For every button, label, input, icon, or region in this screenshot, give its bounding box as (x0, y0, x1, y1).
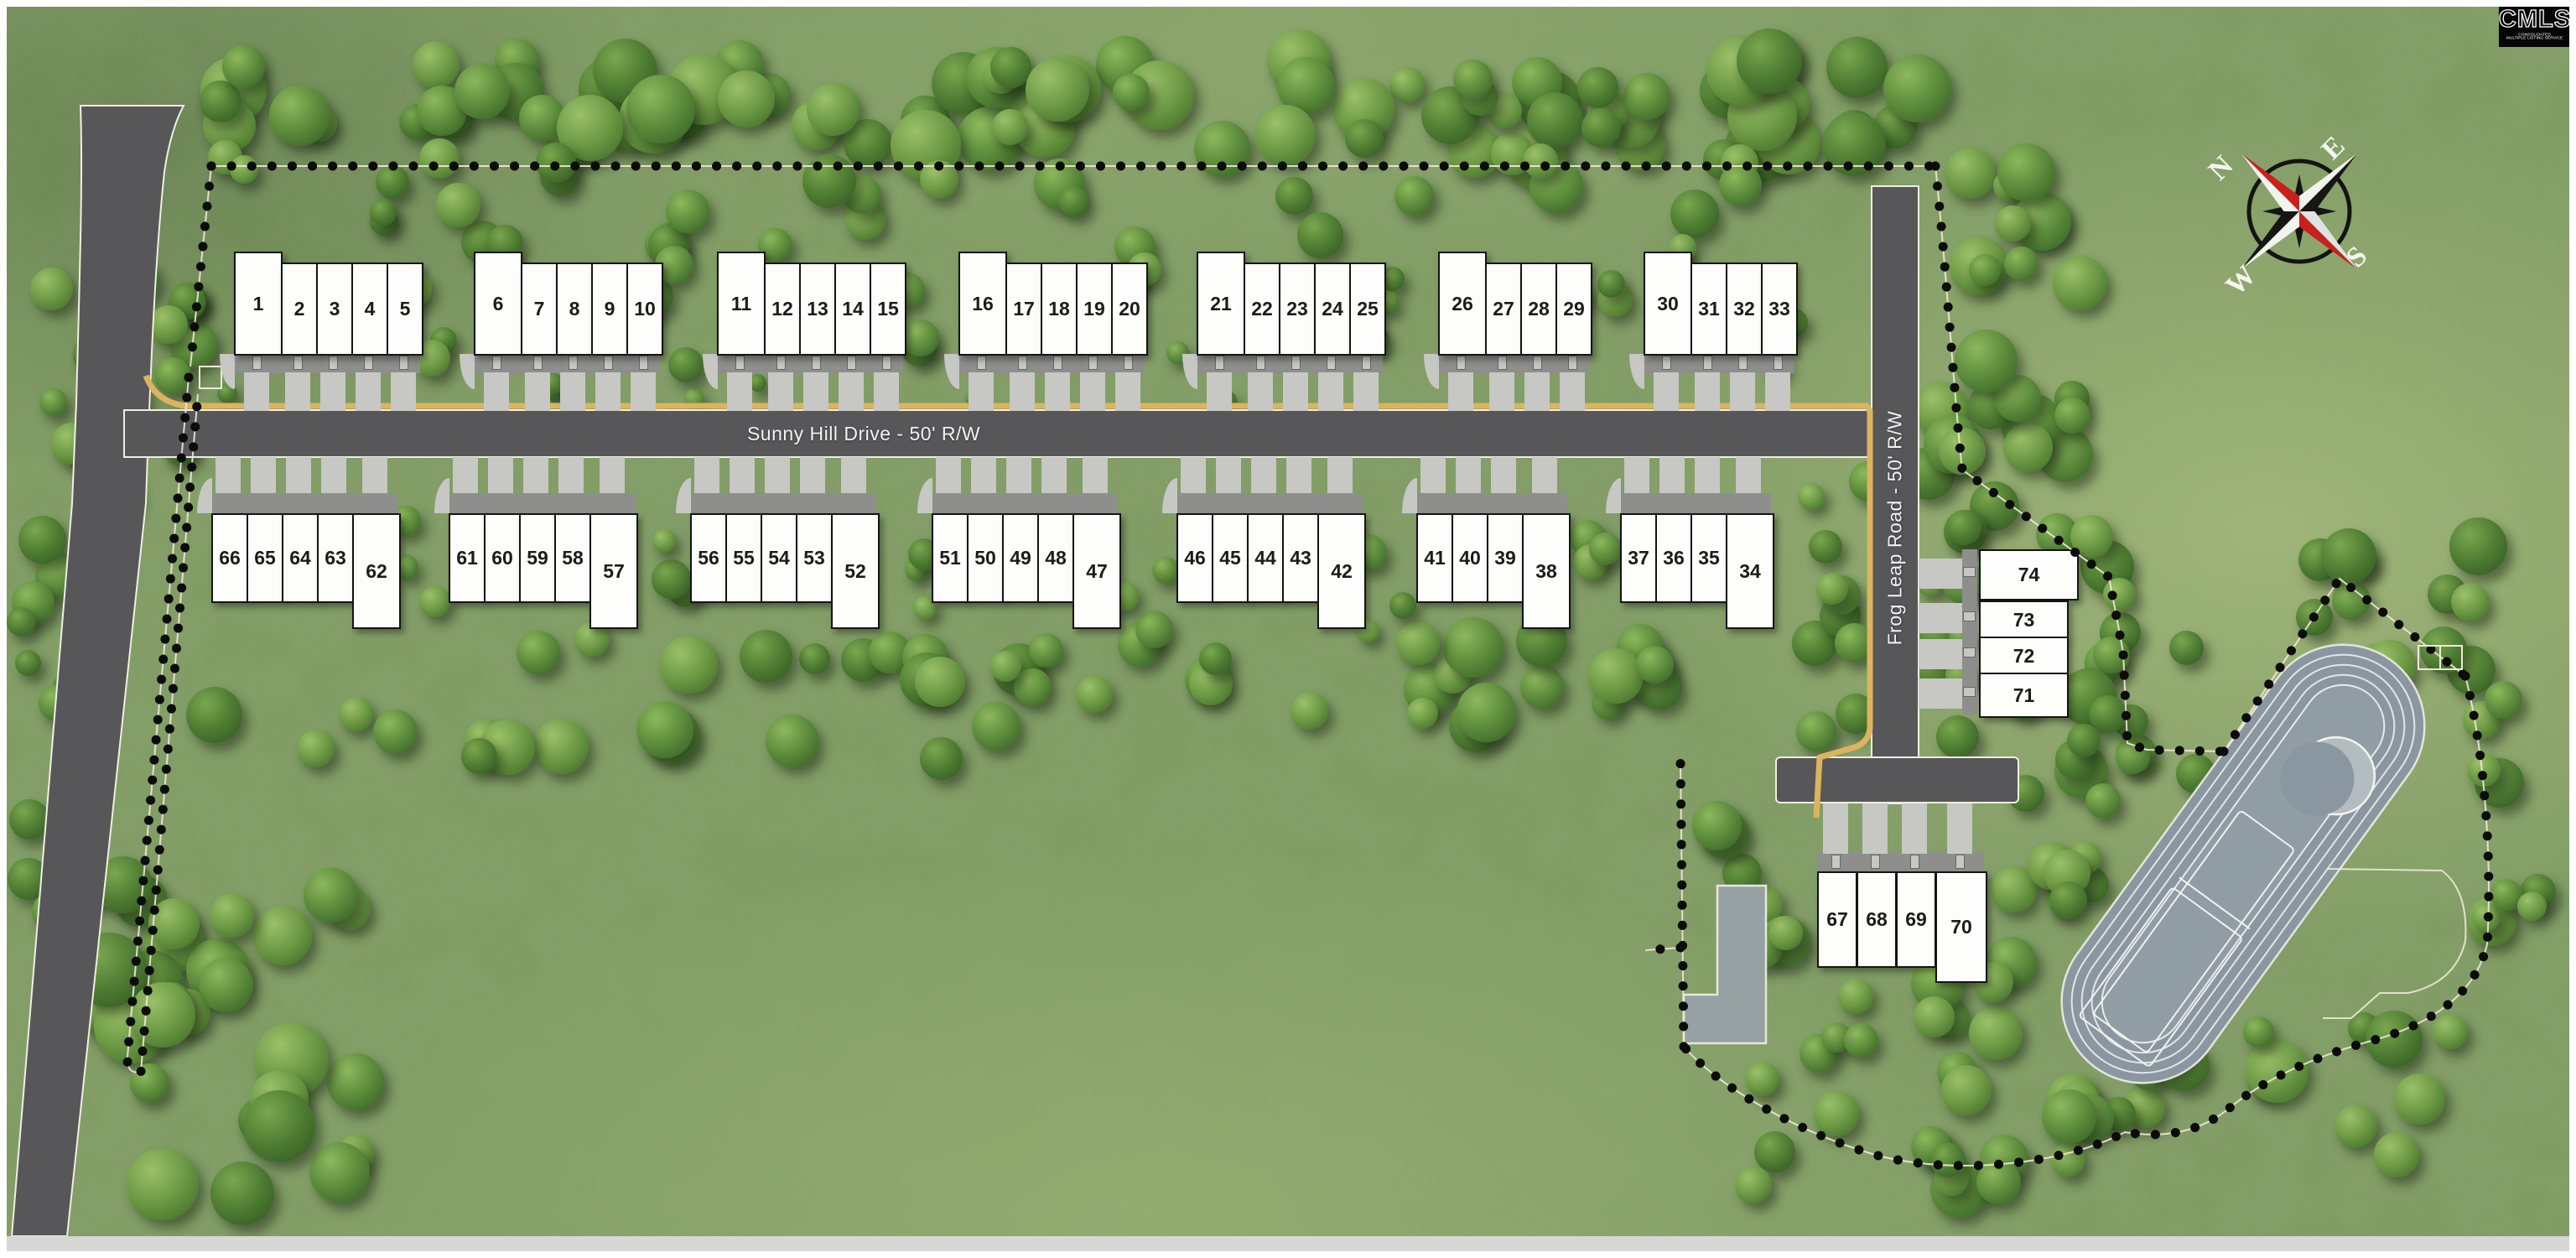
tree (990, 651, 1021, 682)
garage-notch (1964, 568, 1975, 576)
tree (436, 183, 480, 227)
tree (660, 636, 718, 694)
tree (80, 418, 115, 453)
lot-72: 72 (1979, 637, 2069, 675)
tree (1457, 683, 1516, 742)
lot-69: 69 (1896, 871, 1936, 968)
lot-5: 5 (387, 263, 423, 356)
tree (114, 379, 149, 414)
garage-notch (1089, 356, 1097, 369)
garage-notch (978, 356, 985, 369)
driveway-hook (676, 478, 691, 513)
driveway (1659, 457, 1685, 495)
tree (353, 409, 371, 428)
tree (1844, 1023, 1878, 1058)
garage-notch (1911, 855, 1919, 868)
tree (666, 190, 709, 233)
tree (1194, 121, 1250, 177)
tree (1396, 621, 1440, 665)
tree (1822, 112, 1886, 176)
tree (373, 710, 418, 754)
tree (1939, 428, 1986, 475)
driveway (694, 457, 719, 495)
lot-10: 10 (626, 263, 663, 356)
lot-3: 3 (316, 263, 353, 356)
driveway (1654, 372, 1679, 411)
lot-35: 35 (1690, 513, 1727, 603)
garage-notch (1739, 356, 1747, 369)
tree (2467, 753, 2501, 787)
driveway (1491, 457, 1516, 495)
lot-51: 51 (932, 513, 969, 603)
junction-patch (126, 412, 156, 455)
driveway (558, 457, 584, 495)
driveway-hook (944, 354, 959, 389)
driveway (1115, 372, 1140, 411)
garage-notch (1704, 356, 1711, 369)
tree (1014, 668, 1052, 706)
tree (1836, 694, 1876, 734)
tree (1914, 996, 1955, 1037)
lot-26: 26 (1438, 252, 1487, 356)
lot-59: 59 (519, 513, 556, 603)
garage-notch (1956, 855, 1964, 868)
garage-notch (1019, 356, 1026, 369)
garage-notch (777, 356, 785, 369)
tree (2054, 398, 2090, 434)
lot-16: 16 (958, 252, 1007, 356)
lot-13: 13 (799, 263, 836, 356)
tree (1969, 1006, 2023, 1060)
lot-70: 70 (1935, 871, 1987, 983)
driveway (1947, 803, 1972, 854)
driveway (595, 372, 621, 411)
driveway (1045, 372, 1070, 411)
sunny-hill-drive-label: Sunny Hill Drive - 50' R/W (696, 423, 1031, 445)
lot-46: 46 (1176, 513, 1213, 603)
lot-45: 45 (1212, 513, 1249, 603)
driveway (874, 372, 899, 411)
tree (148, 898, 200, 949)
tree (533, 719, 589, 774)
tree (2485, 681, 2522, 719)
lot-20: 20 (1111, 263, 1148, 356)
tree (419, 138, 460, 179)
tree (339, 697, 373, 731)
garage-notch (1054, 356, 1062, 369)
tree (1941, 1065, 1992, 1115)
compass-s-label: S (2340, 241, 2374, 274)
tree (2296, 599, 2333, 636)
driveway (1420, 457, 1446, 495)
lot-19: 19 (1076, 263, 1113, 356)
cmls-logo: CMLS CONSOLIDATED MULTIPLE LISTING SERVI… (2499, 3, 2571, 47)
driveway (631, 372, 656, 411)
lot-58: 58 (554, 513, 591, 603)
driveway-hook (917, 478, 932, 513)
tree (2394, 1073, 2445, 1125)
driveway (765, 457, 790, 495)
tree (1152, 557, 1179, 584)
lot-48: 48 (1037, 513, 1074, 603)
tree (1453, 60, 1493, 99)
driveway (1083, 457, 1108, 495)
garage-notch (253, 356, 261, 369)
tree (1029, 633, 1063, 668)
tree (1754, 1131, 1795, 1172)
driveway-hook (703, 354, 718, 389)
tree (2243, 1016, 2274, 1047)
tree (1623, 73, 1670, 120)
lot-36: 36 (1655, 513, 1692, 603)
tree (1826, 37, 1888, 98)
lot-53: 53 (796, 513, 833, 603)
tree (130, 1063, 169, 1103)
lot-37: 37 (1620, 513, 1657, 603)
driveway (1532, 457, 1557, 495)
tree (1443, 617, 1504, 678)
driveway (286, 457, 311, 495)
garage-apron (449, 493, 635, 513)
tree (1520, 665, 1564, 709)
tree (164, 430, 193, 459)
tree (1955, 330, 2018, 392)
garage-notch (294, 356, 302, 369)
tree (1577, 67, 1618, 108)
garage-notch (1363, 356, 1370, 369)
driveway (1207, 372, 1232, 411)
driveway (525, 372, 550, 411)
driveway (1624, 457, 1649, 495)
tree (2004, 247, 2038, 281)
garage-notch (1498, 356, 1506, 369)
tree (1589, 533, 1622, 565)
driveway (1862, 803, 1888, 854)
tree (1588, 648, 1644, 704)
tree (1838, 979, 1873, 1014)
tree (1670, 190, 1719, 238)
tree (1883, 55, 1951, 122)
lot-7: 7 (521, 263, 558, 356)
tree (1930, 1142, 1966, 1177)
garage-notch (848, 356, 855, 369)
tree (1814, 1091, 1859, 1136)
lot-65: 65 (247, 513, 283, 603)
tree (2007, 775, 2044, 812)
lot-34: 34 (1726, 513, 1774, 629)
lot-33: 33 (1761, 263, 1798, 356)
lot-52: 52 (831, 513, 880, 629)
tree (1389, 67, 1425, 102)
lot-61: 61 (449, 513, 486, 603)
tree (454, 64, 510, 119)
driveway (320, 372, 345, 411)
garage-notch (1774, 356, 1782, 369)
driveway (285, 372, 310, 411)
driveway (1695, 372, 1720, 411)
tree (1275, 177, 1313, 215)
tree (1199, 642, 1232, 675)
lot-44: 44 (1247, 513, 1284, 603)
driveway (216, 457, 241, 495)
tree (2451, 583, 2490, 621)
tree (992, 109, 1028, 145)
lot-18: 18 (1041, 263, 1078, 356)
tree (668, 347, 704, 382)
lot-15: 15 (870, 263, 906, 356)
garage-notch (736, 356, 744, 369)
tree (920, 160, 958, 199)
driveway (1919, 603, 1962, 633)
driveway (1006, 457, 1031, 495)
driveway (1216, 457, 1241, 495)
garage-apron (932, 493, 1118, 513)
driveway (1902, 803, 1927, 854)
garage-notch (493, 356, 501, 369)
driveway-hook (460, 354, 475, 389)
garage-notch (1257, 356, 1265, 369)
tree (1135, 611, 1173, 648)
lot-55: 55 (725, 513, 762, 603)
tree (39, 684, 75, 721)
tree (2176, 754, 2215, 793)
driveway (1448, 372, 1473, 411)
driveway (362, 457, 387, 495)
driveway (1318, 372, 1343, 411)
driveway (1181, 457, 1206, 495)
lot-6: 6 (474, 252, 522, 356)
garage-notch (1327, 356, 1335, 369)
tree (154, 357, 191, 394)
lot-25: 25 (1349, 263, 1386, 356)
tree (327, 1053, 384, 1110)
lot-38: 38 (1522, 513, 1571, 629)
tree (1407, 698, 1438, 729)
tree (1394, 176, 1434, 216)
lot-28: 28 (1520, 263, 1557, 356)
tree (802, 154, 856, 208)
garage-notch (1569, 356, 1576, 369)
tree (807, 83, 860, 136)
tree (1345, 119, 1384, 158)
tree (2067, 724, 2101, 757)
tree (39, 388, 67, 416)
driveway-hook (1162, 478, 1177, 513)
lot-47: 47 (1072, 513, 1121, 629)
tree (1995, 205, 2031, 242)
tree (652, 559, 691, 599)
tree (972, 702, 1021, 751)
tree (127, 1148, 199, 1220)
tree (130, 982, 195, 1047)
tree (1796, 711, 1836, 751)
driveway (969, 372, 994, 411)
tree (200, 81, 241, 122)
tree (2420, 626, 2467, 673)
tree (269, 86, 330, 146)
lot-23: 23 (1279, 263, 1316, 356)
tree (15, 650, 41, 676)
tree (2103, 578, 2136, 611)
site-plan-map: N E S W Sunny Hill Drive - 50' R/W Frog … (0, 0, 2576, 1258)
tree (1026, 58, 1089, 122)
driveway (1524, 372, 1550, 411)
tree (2334, 1105, 2377, 1147)
tree (370, 199, 397, 226)
lot-60: 60 (484, 513, 521, 603)
tree (186, 687, 242, 743)
tree (1722, 854, 1762, 893)
tree (2116, 740, 2150, 774)
lot-29: 29 (1555, 263, 1592, 356)
driveway (1010, 372, 1035, 411)
garage-notch (1964, 688, 1975, 696)
tree (2449, 517, 2507, 575)
tree (1946, 510, 1981, 545)
tree (95, 856, 152, 913)
driveway-hook (1629, 354, 1644, 389)
tree (536, 143, 576, 183)
garage-notch (1872, 855, 1879, 868)
lot-73: 73 (1979, 600, 2069, 639)
garage-notch (330, 356, 337, 369)
lot-11: 11 (717, 252, 766, 356)
driveway-hook (1606, 478, 1621, 513)
lot-27: 27 (1485, 263, 1522, 356)
garage-notch (1292, 356, 1300, 369)
tree (2162, 1021, 2194, 1053)
lot-43: 43 (1282, 513, 1319, 603)
driveway (1489, 372, 1514, 411)
driveway (1919, 559, 1962, 589)
driveway (803, 372, 828, 411)
tree (920, 737, 963, 780)
tree (1291, 692, 1328, 730)
driveway (1765, 372, 1790, 411)
tree (1597, 270, 1625, 298)
tree (1527, 92, 1583, 148)
driveway (321, 457, 346, 495)
garage-apron (1620, 493, 1771, 513)
tree (7, 607, 36, 637)
frog-leap-road-label: Frog Leap Road - 50' R/W (1884, 344, 1907, 713)
tree (376, 165, 409, 199)
garage-notch (1124, 356, 1132, 369)
tree (243, 1090, 315, 1162)
turnaround-road (1776, 757, 2018, 803)
tree (1969, 254, 2001, 286)
lot-57: 57 (589, 513, 638, 629)
tree (1379, 412, 1395, 428)
tree (636, 701, 693, 758)
tree (253, 907, 312, 965)
tree (2042, 1089, 2096, 1144)
driveway (1919, 639, 1962, 669)
tree (210, 893, 254, 938)
lot-39: 39 (1487, 513, 1524, 603)
driveway (251, 457, 276, 495)
tree (2366, 1011, 2423, 1068)
tree (2321, 528, 2376, 584)
garage-notch (1216, 356, 1223, 369)
tree (1835, 623, 1874, 663)
driveway (1248, 372, 1273, 411)
garage-apron (1176, 493, 1363, 513)
tree (304, 868, 358, 923)
compass-n-label: N (2203, 150, 2240, 187)
lot-24: 24 (1314, 263, 1351, 356)
lot-9: 9 (591, 263, 628, 356)
tree (2003, 423, 2053, 472)
tree (1113, 74, 1150, 111)
tree (297, 730, 335, 767)
site-plan-canvas: N E S W Sunny Hill Drive - 50' R/W Frog … (0, 0, 2576, 1258)
tree (2433, 1014, 2468, 1049)
garage-notch (569, 356, 577, 369)
driveway (839, 372, 864, 411)
garage-notch (365, 356, 372, 369)
lot-56: 56 (690, 513, 727, 603)
driveway (1327, 457, 1353, 495)
driveway (1080, 372, 1105, 411)
lot-21: 21 (1197, 252, 1245, 356)
garage-notch (605, 356, 612, 369)
tree (1997, 143, 2055, 201)
tree (1297, 212, 1343, 258)
driveway-hook (1424, 354, 1439, 389)
tree (2374, 1132, 2419, 1177)
lot-64: 64 (282, 513, 319, 603)
tree (1719, 164, 1762, 206)
driveway (1286, 457, 1311, 495)
driveway (727, 372, 752, 411)
tree (210, 1162, 274, 1225)
lot-54: 54 (761, 513, 797, 603)
tree (30, 268, 73, 310)
lot-14: 14 (834, 263, 871, 356)
garage-notch (1457, 356, 1465, 369)
driveway (1560, 372, 1585, 411)
driveway (1353, 372, 1379, 411)
lot-32: 32 (1726, 263, 1763, 356)
tree (1809, 530, 1842, 564)
tree (222, 45, 265, 88)
lot-22: 22 (1244, 263, 1280, 356)
tree (1798, 483, 1825, 510)
lot-30: 30 (1644, 252, 1692, 356)
garage-apron (690, 493, 876, 513)
tree (32, 892, 71, 932)
tree (1523, 143, 1558, 179)
driveway (800, 457, 825, 495)
driveway (1823, 803, 1848, 854)
driveway-hook (434, 478, 449, 513)
tree (91, 468, 139, 517)
driveway (356, 372, 381, 411)
compass-rose: N E S W (2183, 95, 2415, 327)
lot-63: 63 (317, 513, 354, 603)
tree (653, 403, 673, 422)
tree (766, 715, 818, 767)
garage-notch (534, 356, 542, 369)
tree (915, 657, 965, 707)
lot-68: 68 (1857, 871, 1897, 968)
lot-74: 74 (1979, 549, 2079, 600)
entrance-sign-marker (200, 366, 221, 388)
driveway (1730, 372, 1755, 411)
tree (1936, 715, 1979, 758)
tree (1692, 801, 1742, 850)
